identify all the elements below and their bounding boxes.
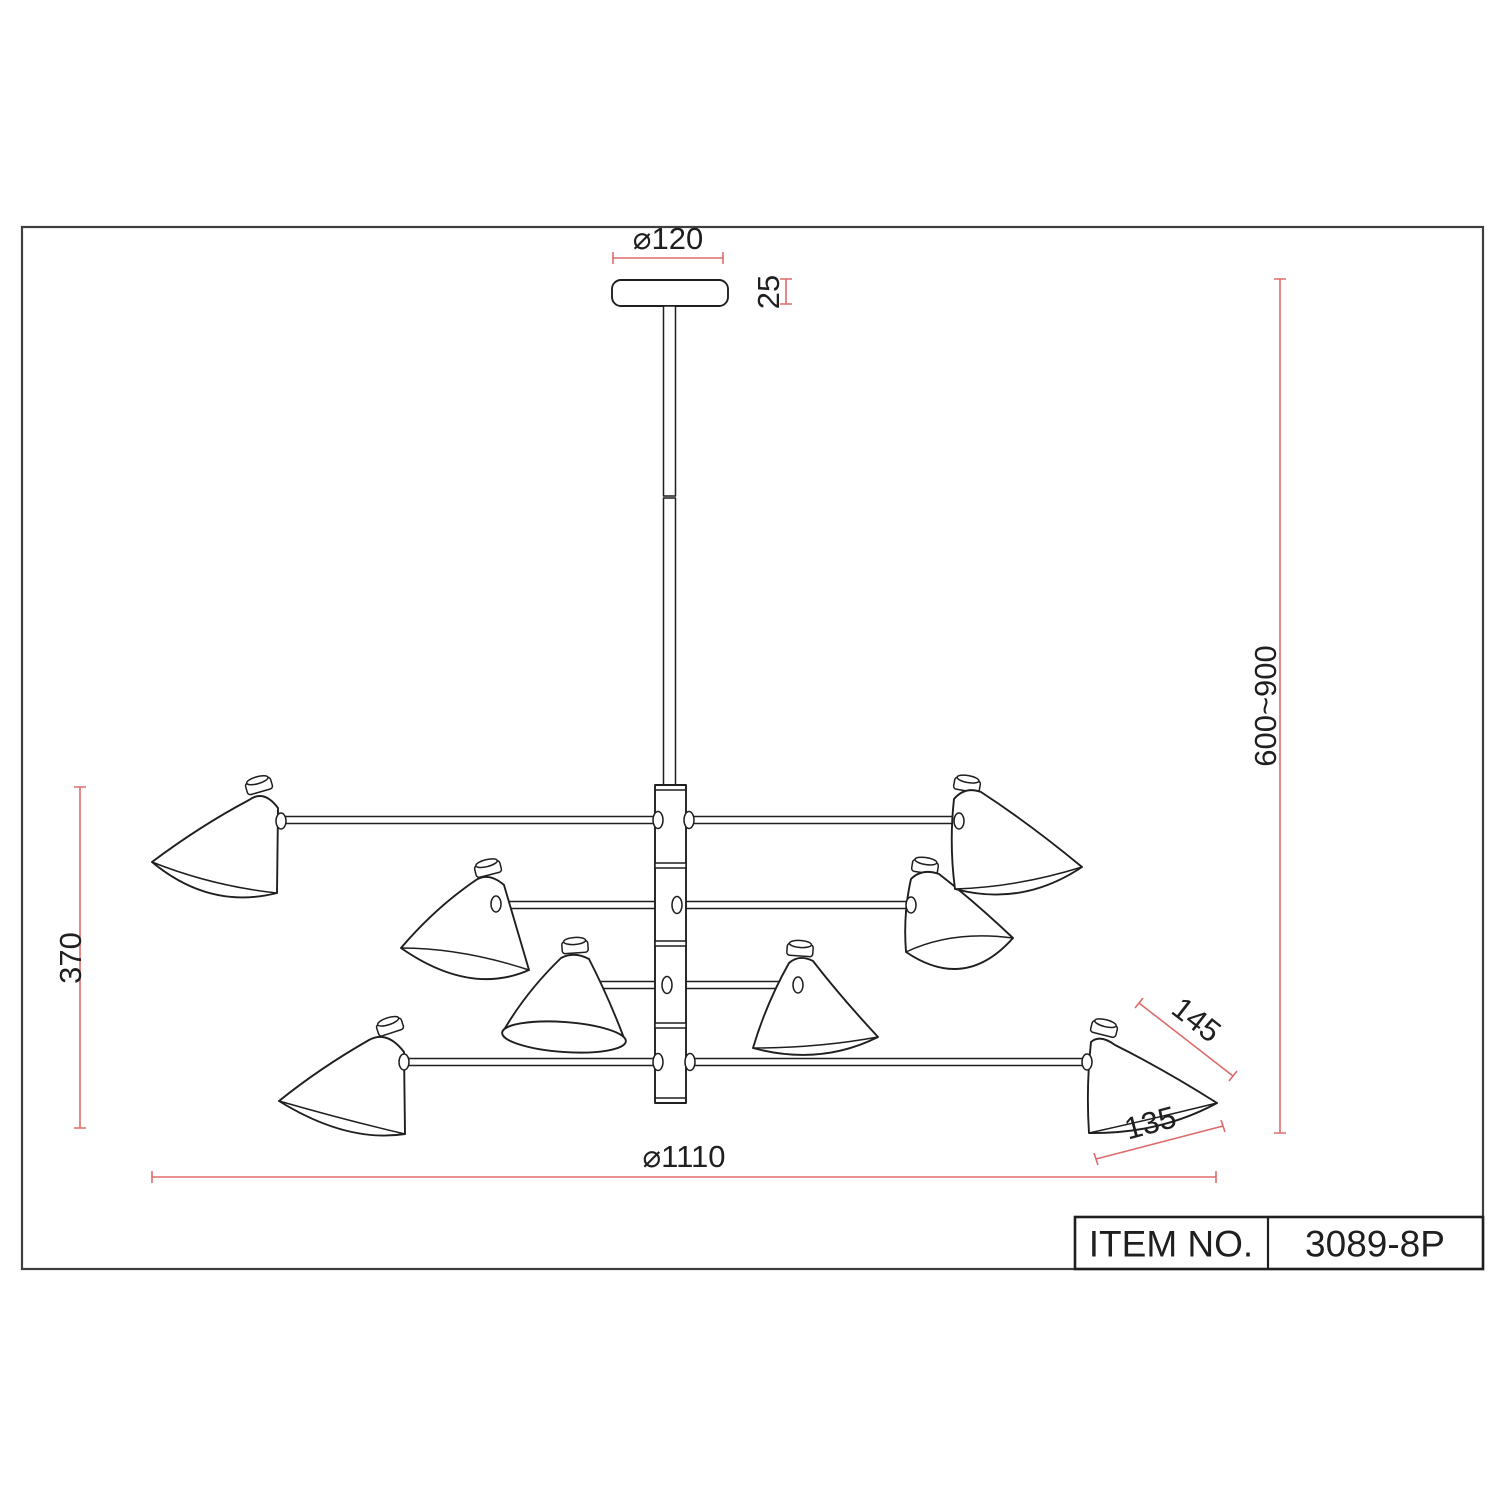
shade-top-left (152, 774, 278, 898)
shade-cone (279, 1037, 405, 1136)
dim-label-suspension-height: 600~900 (1248, 645, 1283, 767)
arm-level4-right (686, 1059, 1087, 1066)
item-no-value: 3089-8P (1305, 1224, 1445, 1265)
arm-level3-left (596, 982, 655, 989)
arm-level1-left (281, 817, 655, 824)
shade-cone (952, 790, 1082, 894)
column-divider (655, 941, 686, 946)
connector (491, 896, 501, 912)
dim-label-body-height: 370 (53, 932, 88, 984)
connector (653, 1054, 663, 1071)
technical-drawing: ⌀120 25 600~900 370 ⌀1110 145 135 ITEM N… (0, 0, 1500, 1500)
connector (685, 1054, 695, 1071)
arm-level4-left (404, 1059, 655, 1066)
dimension-suspension-height: 600~900 (1248, 279, 1286, 1133)
item-no-label: ITEM NO. (1089, 1224, 1253, 1265)
dimension-overall-diameter: ⌀1110 (152, 1139, 1216, 1183)
connector (684, 812, 694, 829)
shade-top-right (952, 774, 1082, 895)
dim-label-canopy-diameter: ⌀120 (633, 221, 703, 256)
connector (672, 897, 682, 914)
dim-label-overall-diameter: ⌀1110 (642, 1139, 725, 1174)
stem-rod-lower (664, 498, 676, 785)
ceiling-canopy (612, 280, 728, 306)
connector (1082, 1054, 1092, 1070)
column-divider (655, 863, 686, 868)
connector (906, 897, 916, 913)
stem-rod-upper (664, 306, 676, 496)
arm-level1-right (686, 817, 958, 824)
dimension-body-height: 370 (53, 787, 88, 1128)
connector (954, 813, 964, 829)
arm-level2-right (686, 902, 913, 909)
connector (662, 977, 672, 994)
shade-bottom-left (279, 1015, 405, 1136)
dimension-canopy-thickness: 25 (751, 275, 792, 309)
arm-level2-left (497, 902, 655, 909)
connector (653, 812, 663, 829)
connector (399, 1054, 409, 1070)
dim-label-shade-slant: 145 (1165, 990, 1227, 1049)
connector (276, 813, 286, 829)
connector (793, 977, 803, 993)
shade-center-right (753, 940, 878, 1055)
title-block: ITEM NO. 3089-8P (1075, 1217, 1483, 1269)
shade-mid-left (401, 857, 529, 979)
column-divider (655, 1023, 686, 1028)
spec-sheet-page: ⌀120 25 600~900 370 ⌀1110 145 135 ITEM N… (0, 0, 1500, 1500)
dim-label-canopy-thickness: 25 (751, 275, 786, 309)
ceiling-canopy-assembly (612, 280, 728, 785)
